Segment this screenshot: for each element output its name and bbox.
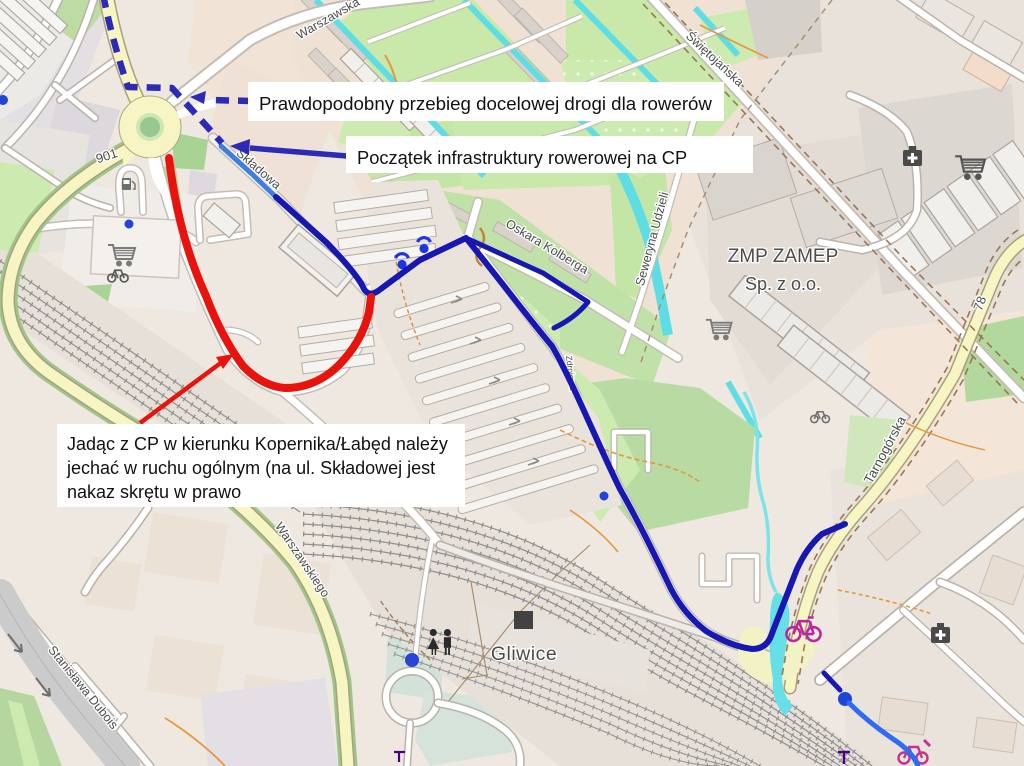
svg-text:Jadąc z CP w kierunku Kopernik: Jadąc z CP w kierunku Kopernika/Łabęd na… — [67, 434, 448, 454]
svg-text:ZMP ZAMEP: ZMP ZAMEP — [728, 246, 839, 267]
svg-text:Początek infrastruktury rowero: Początek infrastruktury rowerowej na CP — [357, 147, 687, 168]
svg-text:Gliwice: Gliwice — [491, 643, 557, 665]
svg-text:Prawdopodobny przebieg docelow: Prawdopodobny przebieg docelowej drogi d… — [259, 93, 712, 114]
svg-text:Sp. z o.o.: Sp. z o.o. — [745, 274, 821, 294]
svg-text:jechać w ruchu ogólnym (na ul.: jechać w ruchu ogólnym (na ul. Składowej… — [66, 458, 435, 478]
svg-text:nakaz skrętu w prawo: nakaz skrętu w prawo — [67, 482, 241, 502]
